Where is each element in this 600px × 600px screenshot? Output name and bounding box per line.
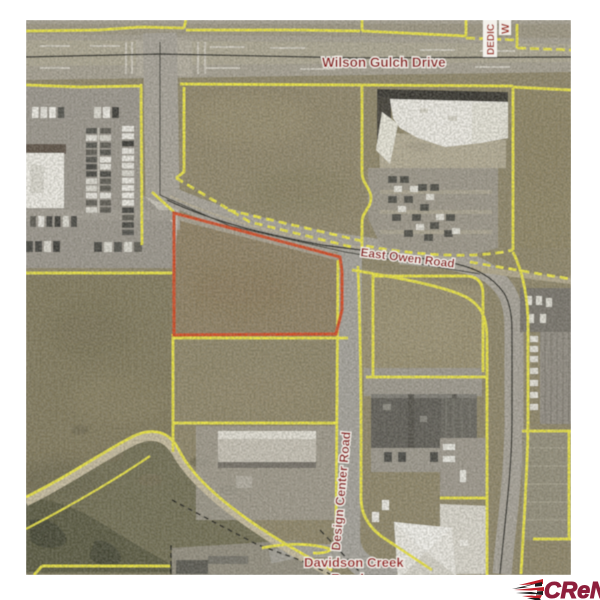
svg-text:DEDIC: DEDIC <box>486 24 497 55</box>
svg-text:Wilson Gulch Drive: Wilson Gulch Drive <box>322 55 446 70</box>
svg-text:CReN: CReN <box>544 577 600 600</box>
svg-text:W: W <box>500 23 512 34</box>
svg-text:Davidson Creek: Davidson Creek <box>304 555 404 570</box>
